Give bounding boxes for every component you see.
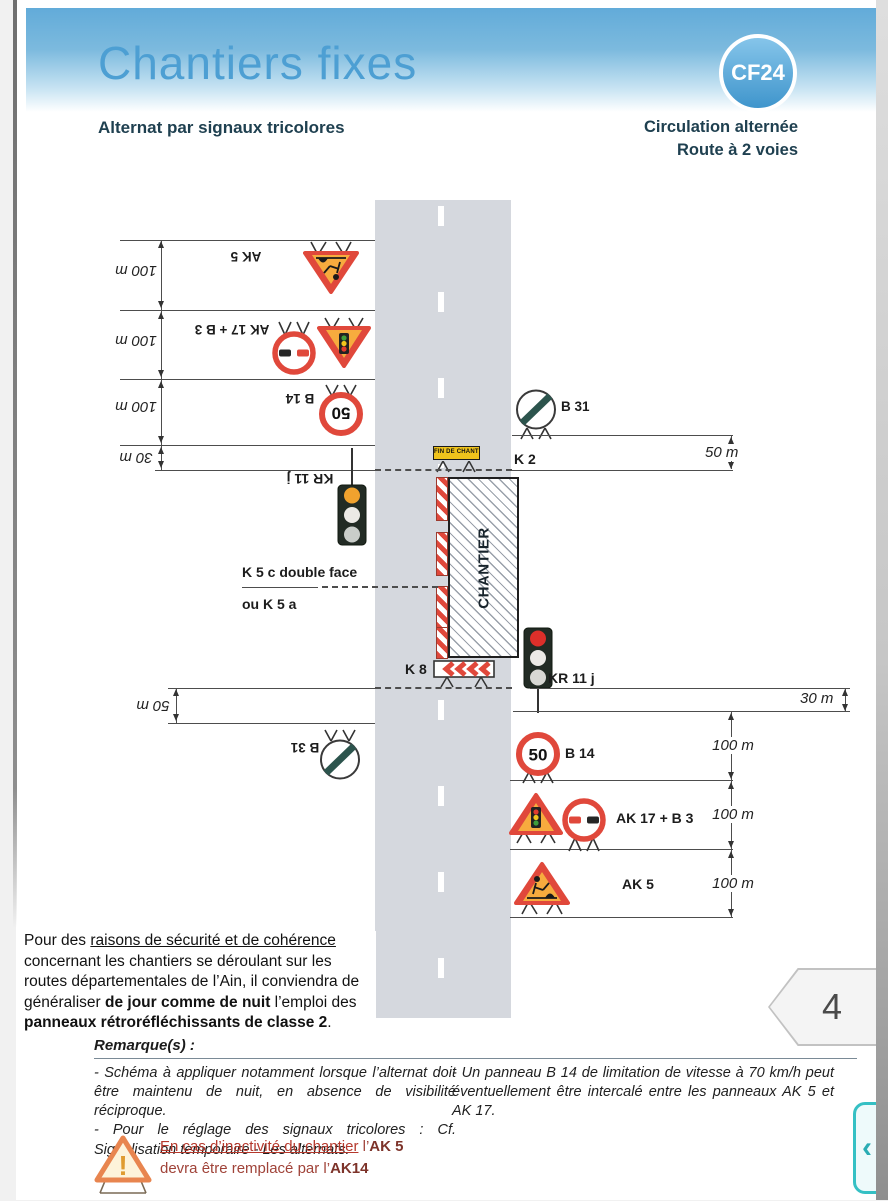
- dim-line: [513, 711, 850, 712]
- label-b14-top: B 14: [278, 391, 322, 406]
- label-b31-top: B 31: [561, 399, 590, 414]
- dim-line: [512, 435, 733, 436]
- arrow-up: [728, 437, 734, 444]
- no-overtaking-sign-icon: [561, 798, 607, 852]
- distance-100m: 100 m: [114, 332, 158, 349]
- note-seg: Pour des: [24, 932, 90, 949]
- stop-line-bottom: [375, 687, 512, 689]
- label-b14-bottom: B 14: [565, 745, 595, 761]
- cf24-badge: CF24: [719, 34, 797, 112]
- note-seg-bold: panneaux rétroréfléchissants de classe 2: [24, 1014, 327, 1031]
- warning-text: En cas d’inactivité du chantier l’AK 5 d…: [160, 1136, 440, 1180]
- distance-50m: 50 m: [132, 697, 174, 714]
- end-restrictions-sign-icon: [317, 729, 363, 781]
- k5c-post: [436, 477, 448, 521]
- label-k8: K 8: [405, 661, 427, 677]
- arrow-down: [728, 841, 734, 848]
- dim-line: [155, 470, 375, 471]
- warning-bold: AK 5: [369, 1138, 403, 1155]
- arrow-down: [158, 370, 164, 377]
- scan-right-edge: [876, 0, 888, 1200]
- arrow-up: [158, 312, 164, 319]
- distance-100m: 100 m: [114, 398, 158, 415]
- arrow-down: [158, 461, 164, 468]
- traffic-light-warning-sign-icon: [509, 792, 563, 844]
- road-centerline-bottom: [438, 700, 444, 1015]
- work-zone-label: CHANTIER: [475, 527, 492, 609]
- roadworks-sign-icon: [303, 241, 359, 295]
- sign-b14-bottom: 50: [514, 732, 562, 789]
- context-block: Circulation alternée Route à 2 voies: [556, 116, 798, 162]
- arrow-up: [158, 241, 164, 248]
- arrow-up: [728, 713, 734, 720]
- traffic-light-icon: [337, 484, 367, 546]
- warning-seg: l’: [358, 1138, 369, 1155]
- sign-b3-top: [271, 316, 317, 375]
- cf24-badge-label: CF24: [731, 60, 785, 86]
- arrow-up: [842, 689, 848, 696]
- dim-line: [512, 470, 733, 471]
- distance-100m: 100 m: [114, 262, 158, 279]
- speed-limit-50-sign-icon: 50: [317, 384, 365, 436]
- page-number: 4: [804, 986, 842, 1028]
- work-zone: CHANTIER: [448, 477, 519, 658]
- arrow-down: [728, 462, 734, 469]
- traffic-light-warning-sign-icon: [317, 317, 371, 369]
- no-overtaking-sign-icon: [271, 321, 317, 375]
- road-centerline-top: [438, 206, 444, 468]
- k5c-post: [436, 532, 448, 576]
- subtitle: Alternat par signaux tricolores: [98, 118, 345, 138]
- note-seg: l’emploi des: [270, 994, 356, 1011]
- note-seg-underlined: raisons de sécurité et de cohérence: [90, 932, 336, 949]
- warning-triangle-icon: !: [92, 1134, 154, 1196]
- k8-barrier-icon: [433, 654, 497, 688]
- svg-text:50: 50: [332, 404, 351, 423]
- arrow-up: [173, 689, 179, 696]
- distance-50m: 50 m: [703, 444, 740, 461]
- traffic-light-pole-bottom: [537, 689, 539, 713]
- label-kr11j-top: KR 11 j: [281, 471, 339, 487]
- roadworks-sign-icon: [514, 861, 570, 915]
- sign-b14-top: 50: [317, 379, 365, 436]
- arrow-up: [158, 381, 164, 388]
- k5c-pointer-dash: [322, 586, 438, 588]
- label-k5c-line1: K 5 c double face: [242, 564, 357, 580]
- chevron-left-icon: ‹: [856, 1133, 872, 1163]
- dim-line: [168, 688, 375, 689]
- note-paragraph: Pour des raisons de sécurité et de cohér…: [24, 931, 376, 1034]
- warning-bold: AK14: [330, 1160, 368, 1177]
- k5c-underline: [242, 587, 318, 588]
- remarks-heading: Remarque(s) :: [94, 1037, 195, 1054]
- warning-seg: devra être remplacé par l’: [160, 1160, 330, 1177]
- arrow-down: [728, 772, 734, 779]
- sign-ak17-top: [317, 312, 371, 369]
- arrow-up: [728, 782, 734, 789]
- distance-100m: 100 m: [696, 806, 770, 823]
- label-kr11j-bottom: KR 11 j: [548, 670, 595, 686]
- distance-100m: 100 m: [696, 875, 770, 892]
- arrow-up: [728, 851, 734, 858]
- arrow-down: [158, 436, 164, 443]
- arrow-down: [728, 909, 734, 916]
- label-k5c-line2: ou K 5 a: [242, 596, 296, 612]
- arrow-down: [173, 714, 179, 721]
- sign-ak5-top: [303, 236, 359, 295]
- warning-underlined: En cas d’inactivité du chantier: [160, 1138, 358, 1155]
- label-ak17b3-bottom: AK 17 + B 3: [616, 810, 693, 826]
- page-title: Chantiers fixes: [98, 36, 417, 90]
- speed-limit-50-sign-icon: 50: [514, 732, 562, 784]
- label-k2: K 2: [514, 451, 536, 467]
- sign-b31-top: [513, 388, 559, 445]
- label-ak17b3-top: AK 17 + B 3: [186, 322, 278, 337]
- remark-item: - Un panneau B 14 de limitation de vites…: [452, 1064, 834, 1121]
- context-line2: Route à 2 voies: [556, 139, 798, 162]
- svg-text:50: 50: [529, 746, 548, 765]
- stop-line-top: [375, 469, 512, 471]
- distance-100m: 100 m: [696, 737, 770, 754]
- label-ak5-top: AK 5: [220, 249, 272, 264]
- label-ak5-bottom: AK 5: [622, 876, 654, 892]
- sign-ak5-bottom: [514, 861, 570, 920]
- note-seg: .: [327, 1014, 331, 1031]
- dim-line: [510, 849, 733, 850]
- context-line1: Circulation alternée: [556, 116, 798, 139]
- k5c-post: [436, 586, 448, 630]
- scan-left-edge-line: [13, 0, 17, 928]
- sign-b3-bottom: [561, 798, 607, 857]
- distance-30m: 30 m: [798, 690, 835, 707]
- sign-b31-bottom: [317, 724, 363, 781]
- fin-de-chantier-banner: FIN DE CHANTIER: [433, 446, 480, 460]
- remarks-divider: [94, 1058, 857, 1059]
- traffic-light-top: [337, 484, 367, 551]
- arrow-up: [158, 447, 164, 454]
- note-seg-bold: de jour comme de nuit: [105, 994, 270, 1011]
- svg-text:!: !: [118, 1150, 127, 1181]
- warning-sign: !: [92, 1134, 154, 1201]
- traffic-light-pole-top: [351, 448, 353, 485]
- distance-30m: 30 m: [114, 449, 158, 466]
- remarks-right-column: - Un panneau B 14 de limitation de vites…: [452, 1064, 834, 1121]
- arrow-down: [158, 301, 164, 308]
- arrow-down: [842, 704, 848, 711]
- sign-ak17-bottom: [509, 792, 563, 849]
- remark-item: - Schéma à appliquer notamment lorsque l…: [94, 1064, 456, 1121]
- end-restrictions-sign-icon: [513, 388, 559, 440]
